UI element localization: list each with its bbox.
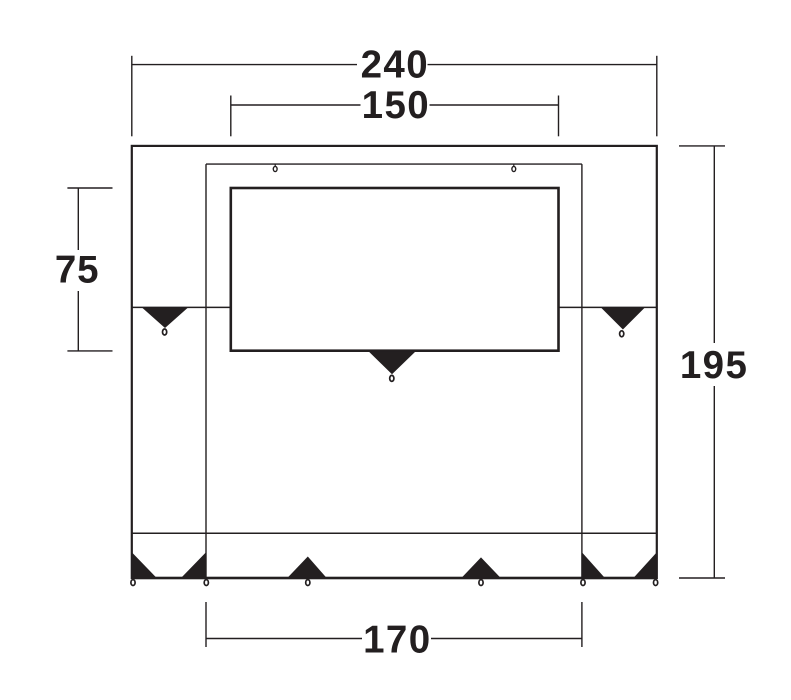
svg-text:170: 170 <box>363 619 431 662</box>
svg-text:150: 150 <box>362 84 430 127</box>
svg-text:195: 195 <box>680 344 748 387</box>
svg-text:240: 240 <box>361 43 429 86</box>
svg-text:75: 75 <box>55 249 99 292</box>
